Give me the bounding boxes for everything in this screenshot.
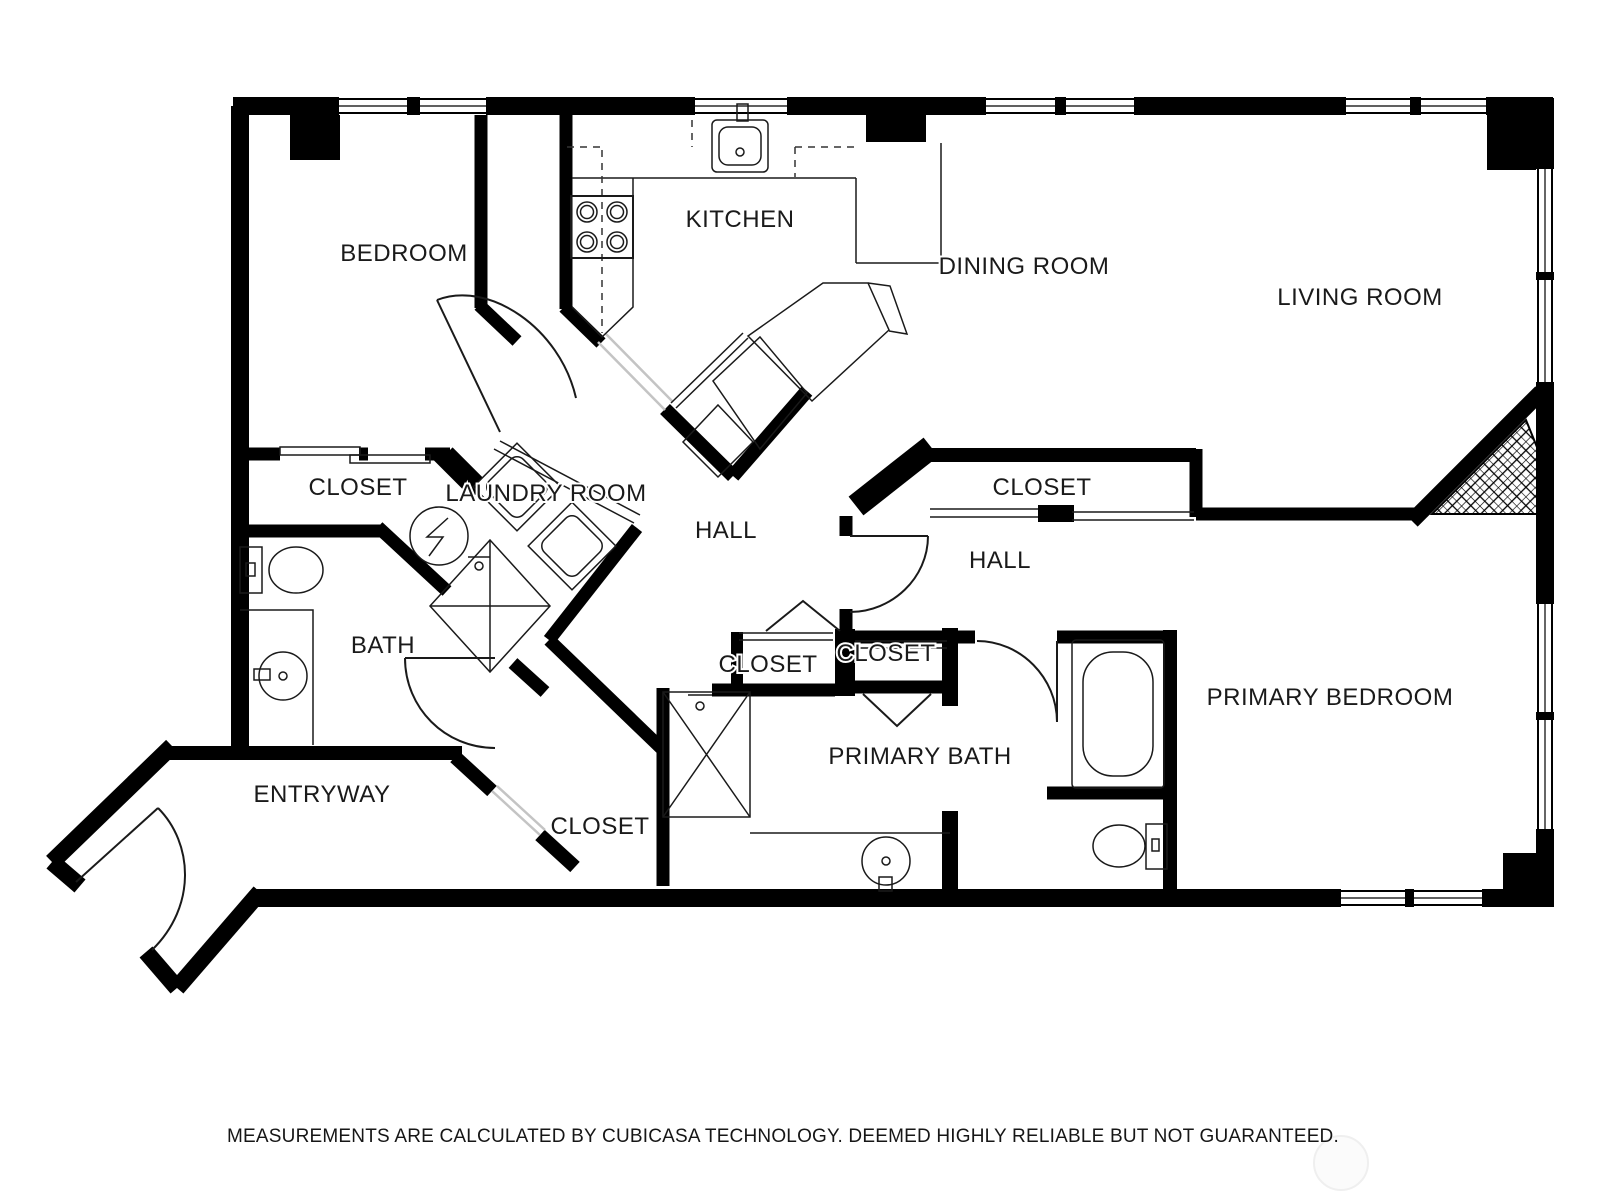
shower-icon: [663, 692, 750, 817]
floor-plan-page: BEDROOM KITCHEN DINING ROOM LIVING ROOM …: [0, 0, 1600, 1200]
room-label-kitchen: KITCHEN: [686, 206, 795, 233]
kitchen-wall-stub: [866, 97, 926, 142]
window-icon: [1536, 603, 1554, 830]
room-label-primary-bath: PRIMARY BATH: [828, 743, 1011, 770]
room-label-closet-small-left: CLOSET: [718, 651, 817, 678]
room-label-closet-bedroom: CLOSET: [308, 474, 407, 501]
door-swing-icon: [977, 641, 1057, 722]
fixtures: [240, 104, 1543, 891]
door-swing-icon: [437, 295, 576, 432]
room-labels: BEDROOM KITCHEN DINING ROOM LIVING ROOM …: [254, 206, 1454, 840]
room-label-hall-right: HALL: [969, 547, 1031, 574]
window-icon: [1340, 889, 1483, 907]
fireplace-hatch-icon: [1432, 420, 1543, 514]
room-label-laundry-room: LAUNDRY ROOM: [445, 480, 646, 507]
bathtub-icon: [1072, 640, 1164, 788]
window-icon: [694, 97, 788, 115]
window-icon: [338, 97, 487, 115]
room-label-closet-small-right: CLOSET: [836, 640, 935, 667]
slider-divider: [1038, 505, 1074, 522]
room-label-closet-hall: CLOSET: [992, 474, 1091, 501]
wall-openings: [492, 334, 673, 835]
bathroom-sink-icon: [750, 833, 950, 891]
corner-block: [1487, 97, 1553, 170]
bifold-door-icon: [766, 601, 840, 631]
walls: [52, 97, 1554, 988]
door-swing-icon: [405, 658, 495, 748]
corner-block: [1503, 853, 1554, 900]
footer-disclaimer: MEASUREMENTS ARE CALCULATED BY CUBICASA …: [227, 1126, 1339, 1147]
window-icon: [1536, 168, 1554, 383]
bathroom-sink-icon: [240, 610, 313, 745]
water-heater-icon: [410, 507, 468, 565]
room-label-bedroom: BEDROOM: [340, 240, 468, 267]
corner-block: [290, 115, 340, 160]
room-label-living-room: LIVING ROOM: [1277, 284, 1443, 311]
toilet-icon: [1093, 824, 1167, 869]
room-label-entryway: ENTRYWAY: [254, 781, 391, 808]
toilet-icon: [240, 547, 323, 593]
room-label-hall-center: HALL: [695, 517, 757, 544]
floor-plan-drawing: BEDROOM KITCHEN DINING ROOM LIVING ROOM …: [0, 0, 1600, 1200]
room-label-dining-room: DINING ROOM: [939, 253, 1110, 280]
window-icon: [1345, 97, 1487, 115]
shower-icon: [430, 540, 550, 672]
room-label-closet-entry: CLOSET: [550, 813, 649, 840]
sliding-door-icon: [280, 447, 430, 463]
room-label-primary-bedroom: PRIMARY BEDROOM: [1207, 684, 1454, 711]
window-icon: [985, 97, 1135, 115]
door-swing-icon: [850, 536, 928, 612]
bifold-door-icon: [863, 694, 931, 726]
room-label-bath: BATH: [351, 632, 415, 659]
